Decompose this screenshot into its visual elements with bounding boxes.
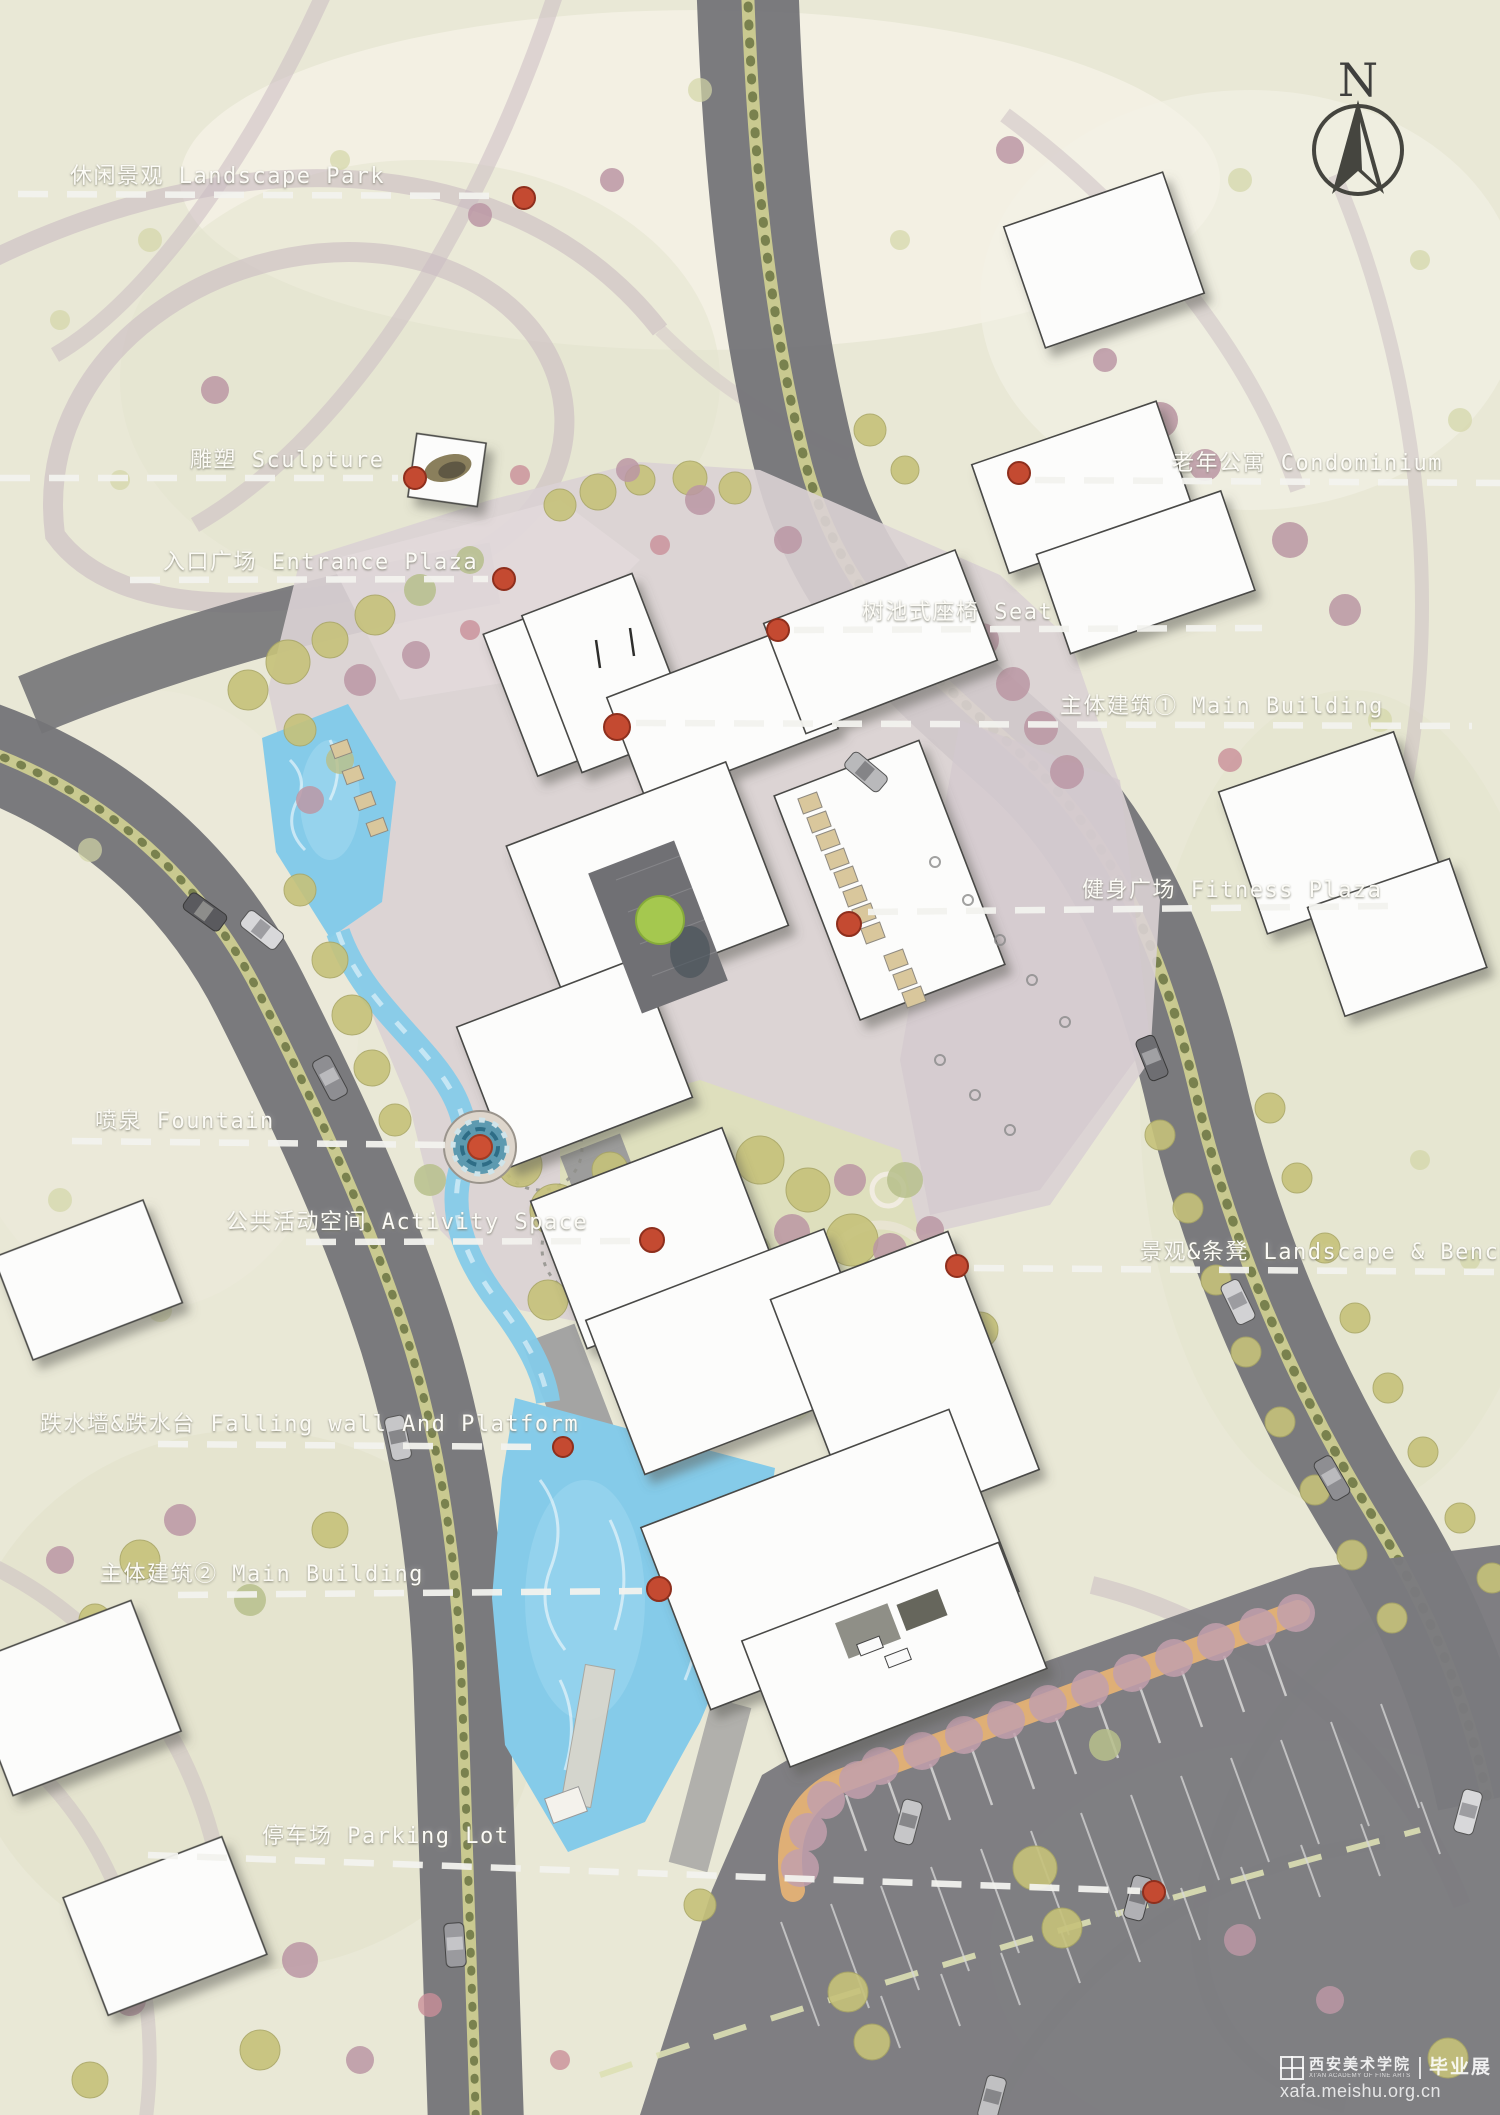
site-plan-map: N: [0, 0, 1500, 2115]
watermark-divider: [1419, 2057, 1421, 2079]
annotation-fountain: 喷泉 Fountain: [95, 1103, 275, 1135]
leader-line: [636, 723, 1472, 726]
site-plan-page: N 休闲景观 Landscape Park 雕塑 Sculpture 入口广场 …: [0, 0, 1500, 2115]
academy-logo-icon: [1280, 2056, 1304, 2080]
red-marker: [767, 619, 789, 641]
red-marker: [1008, 462, 1030, 484]
leader-line: [974, 1268, 1500, 1272]
annotation-entrance-plaza: 入口广场 Entrance Plaza: [163, 544, 478, 576]
annotation-main-building-2: 主体建筑② Main Building: [100, 1556, 424, 1588]
red-marker: [1143, 1881, 1165, 1903]
annotation-senior-condominium: 老年公寓 Condominium: [1172, 445, 1443, 477]
red-marker: [513, 187, 535, 209]
annotation-activity-space: 公共活动空间 Activity Space: [226, 1204, 588, 1236]
annotation-fitness-plaza: 健身广场 Fitness Plaza: [1082, 872, 1382, 904]
annotation-parking-lot: 停车场 Parking Lot: [262, 1818, 509, 1850]
annotation-main-building-1: 主体建筑① Main Building: [1060, 688, 1384, 720]
annotation-tree-pool-seat: 树池式座椅 Seat: [862, 594, 1053, 626]
academy-name: 西安美术学院: [1309, 2057, 1411, 2073]
fountain-feature: [444, 1111, 516, 1183]
red-marker: [640, 1228, 664, 1252]
red-marker: [647, 1577, 671, 1601]
exhibition-label: 毕业展: [1429, 2058, 1492, 2078]
red-marker: [404, 467, 426, 489]
watermark-url: xafa.meishu.org.cn: [1280, 2082, 1492, 2101]
red-marker: [946, 1255, 968, 1277]
north-label: N: [1338, 53, 1378, 107]
red-marker: [604, 714, 630, 740]
red-marker: [553, 1437, 573, 1457]
red-marker: [837, 912, 861, 936]
annotation-landscape-park: 休闲景观 Landscape Park: [70, 158, 385, 190]
red-marker: [493, 568, 515, 590]
annotation-falling-wall-platform: 跌水墙&跌水台 Falling wall And Platform: [40, 1406, 579, 1438]
annotation-landscape-bench: 景观&条凳 Landscape & Bench: [1140, 1234, 1500, 1266]
annotation-sculpture: 雕塑 Sculpture: [190, 442, 384, 474]
academy-name-en: XI'AN ACADEMY OF FINE ARTS: [1309, 2073, 1411, 2079]
watermark: 西安美术学院 XI'AN ACADEMY OF FINE ARTS 毕业展 xa…: [1280, 2056, 1492, 2101]
